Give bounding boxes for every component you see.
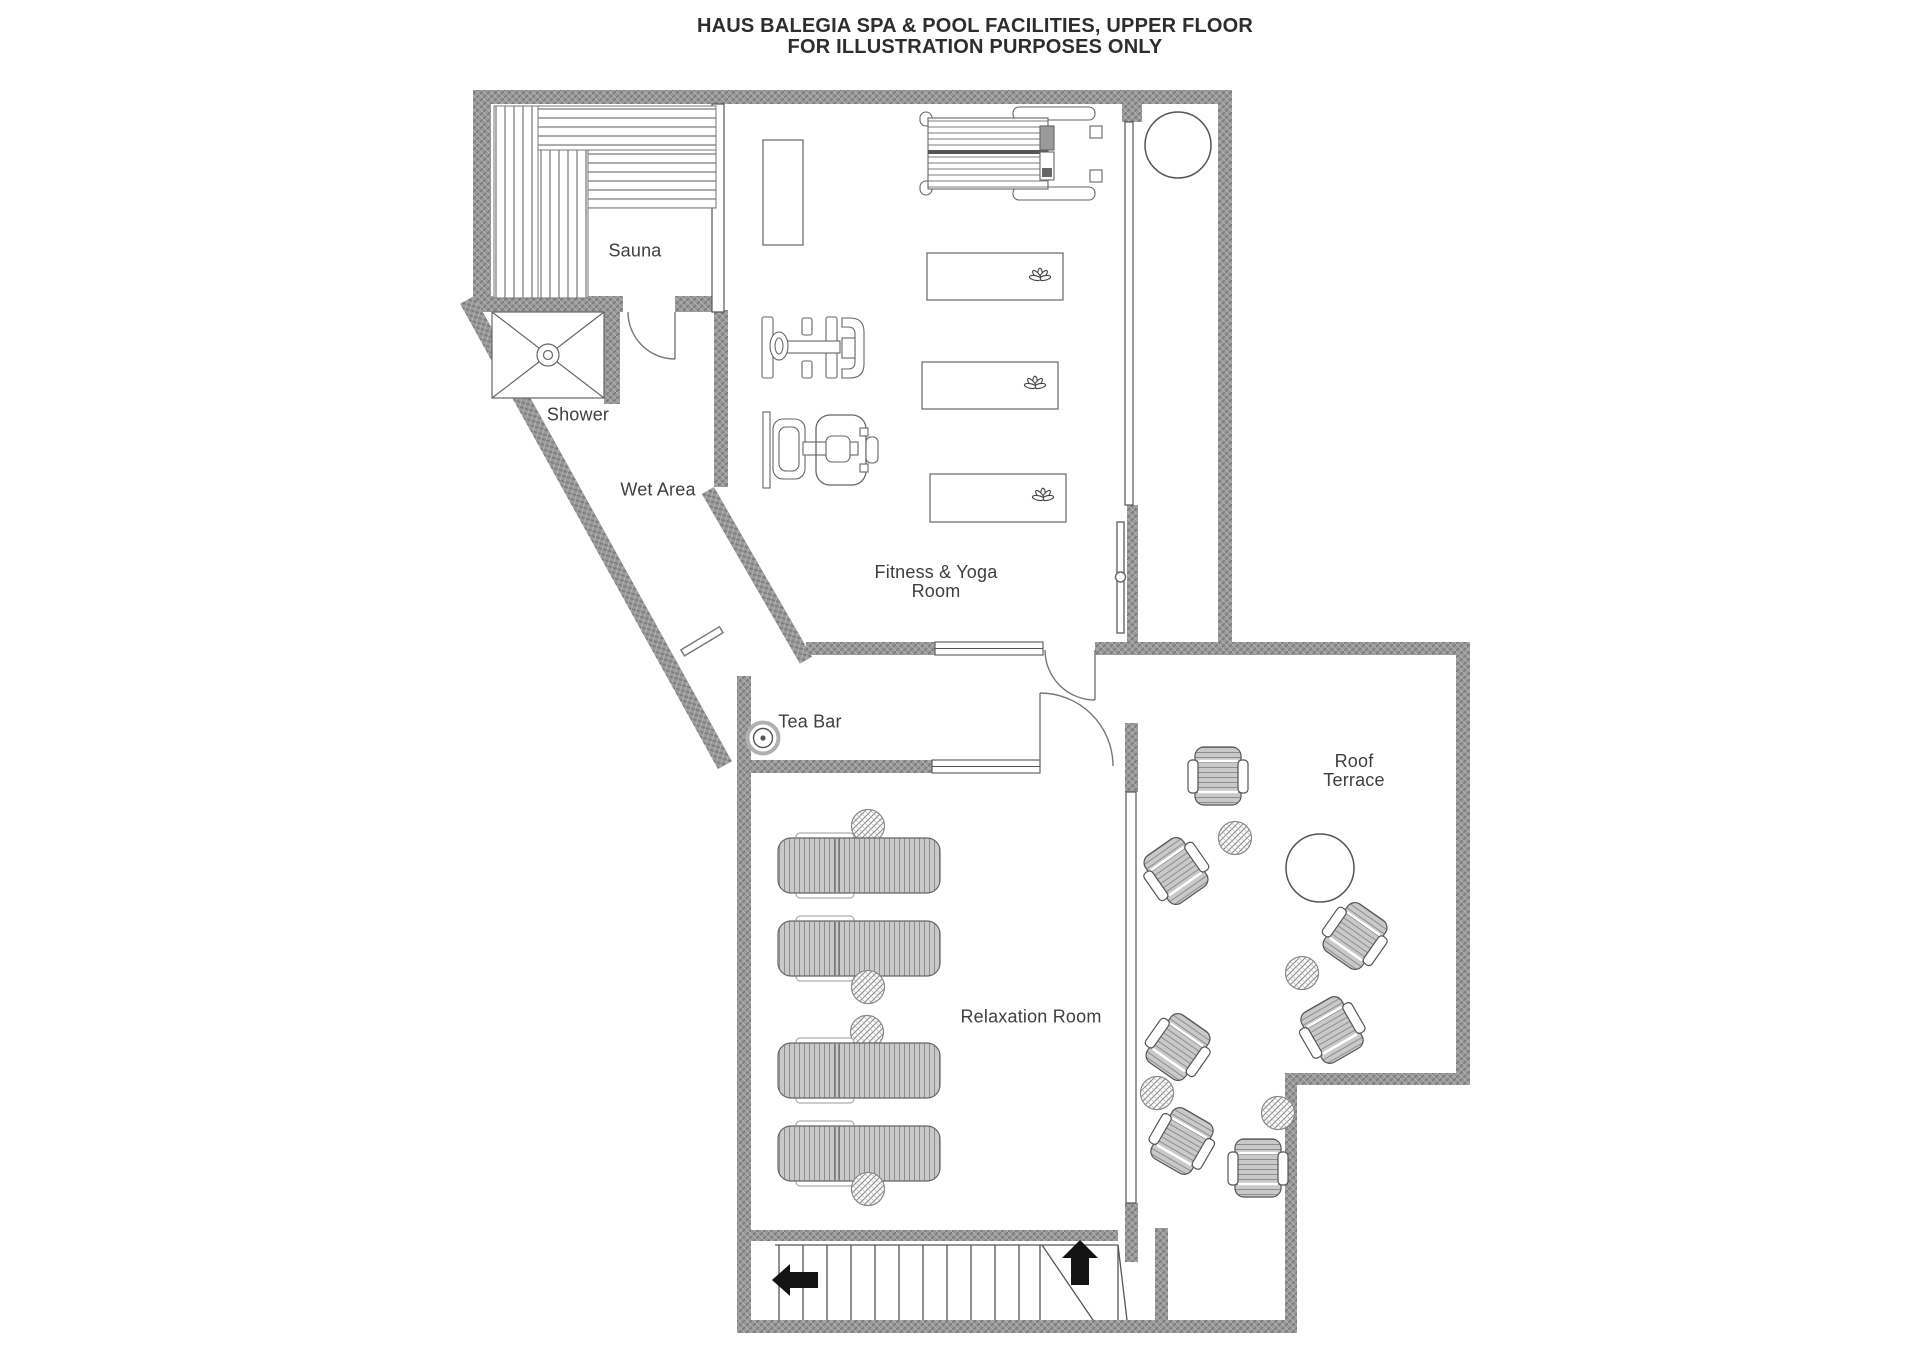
corridor-door-arc bbox=[1040, 693, 1113, 766]
round-table-corner bbox=[1145, 112, 1211, 178]
exercise-bike bbox=[762, 317, 864, 378]
fitness-door-arc bbox=[1045, 650, 1095, 700]
armchair bbox=[1292, 990, 1373, 1070]
wall-right-outer-upper bbox=[1218, 104, 1232, 655]
wall-bottom bbox=[737, 1320, 1297, 1333]
wall-terrace-top bbox=[1095, 642, 1470, 655]
terrace-small-table bbox=[1219, 822, 1252, 855]
room-label-sauna: Sauna bbox=[608, 242, 661, 261]
wall-pillar bbox=[1122, 104, 1142, 122]
room-label-tea-bar: Tea Bar bbox=[778, 713, 841, 732]
room-label-relaxation: Relaxation Room bbox=[960, 1008, 1101, 1027]
wet-area-door-leaf bbox=[681, 627, 723, 656]
wall-stair-top bbox=[748, 1230, 1118, 1241]
room-label-shower: Shower bbox=[547, 406, 609, 425]
side-table bbox=[852, 1173, 885, 1206]
exercise-mat-bench bbox=[763, 140, 803, 245]
sauna-bench-top bbox=[538, 106, 716, 150]
terrace-small-table bbox=[1286, 957, 1319, 990]
sun-lounger bbox=[778, 916, 940, 981]
room-label-fitness: Fitness & Yoga Room bbox=[875, 563, 998, 601]
wall-relax-right-upper bbox=[1125, 723, 1138, 792]
armchair bbox=[1188, 747, 1248, 805]
relaxation-furniture bbox=[778, 810, 940, 1206]
drain-icon-center bbox=[544, 351, 553, 360]
tea-bar-stool bbox=[748, 723, 779, 754]
wall-sauna-bottom-stub bbox=[675, 296, 714, 312]
sauna-bench-left-2 bbox=[538, 150, 588, 298]
wall-fitness-bottom bbox=[806, 642, 935, 655]
terrace-small-table bbox=[1262, 1097, 1295, 1130]
wall-top bbox=[473, 90, 1232, 104]
window-fitness-wall bbox=[935, 642, 1043, 655]
armchair bbox=[1142, 1101, 1223, 1181]
wall-terrace-right bbox=[1456, 642, 1470, 1085]
sauna-door-arc bbox=[628, 312, 675, 359]
armchair bbox=[1314, 895, 1396, 977]
yoga-mat bbox=[930, 474, 1066, 522]
sun-lounger bbox=[778, 1038, 940, 1103]
floor-plan: HAUS BALEGIA SPA & POOL FACILITIES, UPPE… bbox=[0, 0, 1920, 1357]
yoga-mats bbox=[922, 253, 1066, 522]
sauna-bench-top-2 bbox=[588, 150, 716, 208]
armchair bbox=[1137, 1006, 1219, 1088]
wall-diagonal-inner bbox=[702, 487, 812, 664]
strip-sliding-door bbox=[1116, 522, 1126, 633]
sauna-bench-left bbox=[494, 106, 538, 298]
wall-tea-bar bbox=[748, 760, 932, 773]
fitness-equipment bbox=[762, 107, 1211, 522]
relax-terrace-glass bbox=[1126, 792, 1136, 1203]
staircase bbox=[772, 1240, 1127, 1320]
terrace-small-table bbox=[1141, 1077, 1174, 1110]
wall-relax-right-lower bbox=[1125, 1203, 1138, 1262]
floor-plan-drawing bbox=[0, 0, 1920, 1357]
wall-terrace-step bbox=[1297, 1073, 1470, 1085]
strip-glass-partition bbox=[1125, 122, 1133, 505]
armchair bbox=[1228, 1139, 1288, 1197]
roof-terrace-furniture bbox=[1135, 747, 1396, 1197]
shower-unit bbox=[492, 312, 604, 398]
side-table bbox=[852, 971, 885, 1004]
stair-treads bbox=[779, 1245, 1040, 1320]
window-tea-bar-wall bbox=[932, 760, 1040, 773]
wall-shower-right bbox=[604, 312, 620, 404]
armchair bbox=[1135, 830, 1217, 912]
round-table-terrace bbox=[1286, 834, 1354, 902]
room-label-wet-area: Wet Area bbox=[620, 481, 695, 500]
wall-left-upper bbox=[473, 104, 491, 298]
sauna-benches bbox=[494, 106, 716, 298]
arrow-up-icon bbox=[1062, 1240, 1098, 1285]
room-label-roof-terrace: Roof Terrace bbox=[1323, 752, 1384, 790]
wall-strip-mid bbox=[1127, 505, 1138, 655]
wall-stair-right bbox=[1155, 1228, 1168, 1333]
sun-lounger bbox=[778, 833, 940, 898]
plan-title: HAUS BALEGIA SPA & POOL FACILITIES, UPPE… bbox=[697, 16, 1253, 58]
yoga-mat bbox=[922, 362, 1058, 409]
stool-icon bbox=[760, 735, 765, 740]
treadmill bbox=[920, 107, 1102, 200]
weight-machine bbox=[763, 412, 878, 488]
wall-fitness-left-mid bbox=[714, 310, 728, 487]
yoga-mat bbox=[927, 253, 1063, 300]
